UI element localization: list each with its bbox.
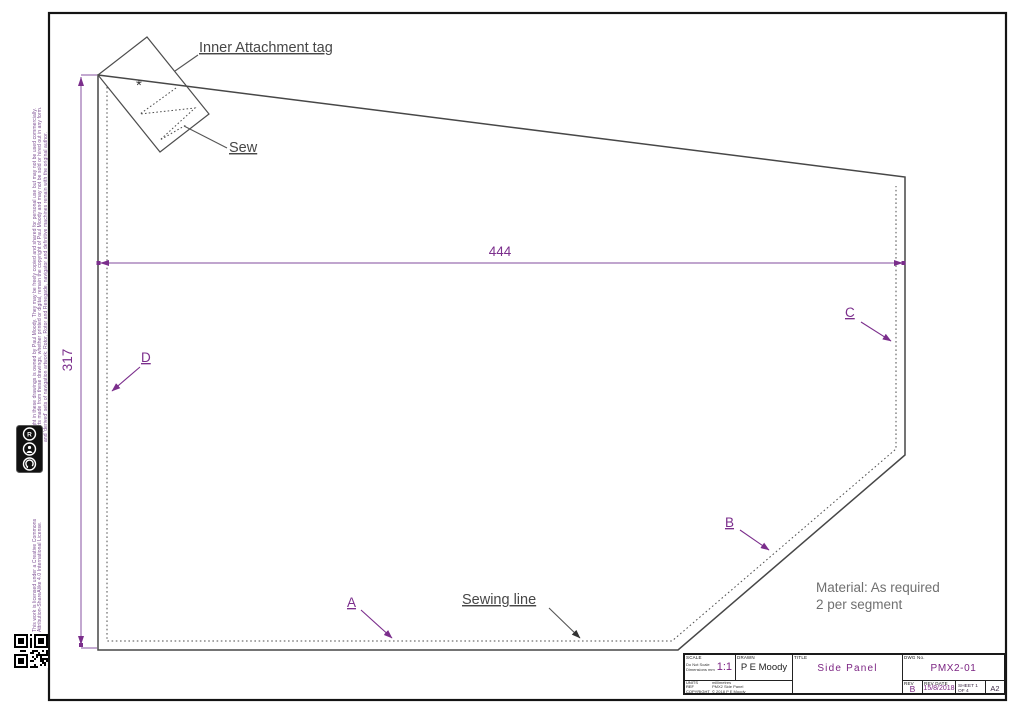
point-label-d: D [141,350,151,365]
title-value: Side Panel [793,663,902,674]
dim-height-end-bottom [79,643,83,647]
dim-width-arrow-left [100,260,109,266]
inner-attachment-tag-shape [98,37,209,152]
material-note-line1: Material: As required [816,580,940,595]
scale-value: 1:1 [717,661,732,673]
notes-cell: UNITSmillimetres REFPMX2 Side Panel COPY… [685,680,792,693]
scale-cell: SCALE Do Not ScaleDimensions mm 1:1 [685,655,735,680]
size-value: A2 [986,684,1004,693]
dim-height-value: 317 [60,349,75,372]
dim-width-value: 444 [489,244,512,259]
sew-label: Sew [229,140,258,156]
leader-tag [175,55,198,71]
sheet-cell: SHEET 1OF 4 [955,680,985,693]
drawn-value: P E Moody [736,662,792,673]
drawn-cell: DRAWN P E Moody [735,655,792,680]
dim-height-arrow-top [78,77,84,86]
sheet-value: SHEET 1OF 4 [958,684,978,695]
rev-value: B [903,684,922,694]
panel-outline [98,75,905,650]
dim-width-end-left [97,261,101,265]
asterisk-mark: * [136,77,142,94]
cad-drawing-canvas: * 444 317 D C B A Sewing line Inner Atta [0,0,1024,716]
scale-notes: Do Not ScaleDimensions mm [686,663,715,672]
drawn-header: DRAWN [737,655,755,660]
qr-code [14,634,48,668]
leader-sew [184,126,227,148]
copyright-row: COPYRIGHT© 2018 P E Moody [686,690,791,694]
tag-zigzag-stitch [140,88,195,140]
leader-c [861,322,891,341]
point-label-a: A [347,595,356,610]
dim-width-end-right [902,261,906,265]
leader-sewing-line [549,608,580,638]
dwg-cell: DWG No. PMX2-01 [902,655,1004,680]
dwg-number-header: DWG No. [904,655,925,660]
title-block: SCALE Do Not ScaleDimensions mm 1:1 DRAW… [683,653,1006,695]
drawing-sheet: * 444 317 D C B A Sewing line Inner Atta [0,0,1024,716]
creative-commons-badge-icon: R [16,425,43,473]
scale-header: SCALE [686,655,702,660]
margin-license-text: This work is licensed under a Creative C… [33,519,44,632]
leader-d [112,367,140,391]
point-label-b: B [725,515,734,530]
dwg-number-value: PMX2-01 [903,663,1004,674]
svg-text:R: R [27,432,32,439]
point-label-c: C [845,305,855,320]
inner-attachment-tag-label: Inner Attachment tag [199,40,333,56]
rev-cell: REV B [902,680,922,693]
margin-copyright-text: Copyright in these drawings is owned by … [33,107,49,442]
leader-a [361,610,392,638]
material-note-line2: 2 per segment [816,597,903,612]
leader-b [740,530,769,550]
sewing-line-path [107,87,896,641]
revdate-cell: REV DATE 15/8/2018 [922,680,955,693]
sewing-line-label: Sewing line [462,592,536,608]
title-cell: TITLE Side Panel [792,655,902,693]
size-cell: A2 [985,680,1004,693]
title-header: TITLE [794,655,807,660]
revdate-value: 15/8/2018 [923,685,955,692]
